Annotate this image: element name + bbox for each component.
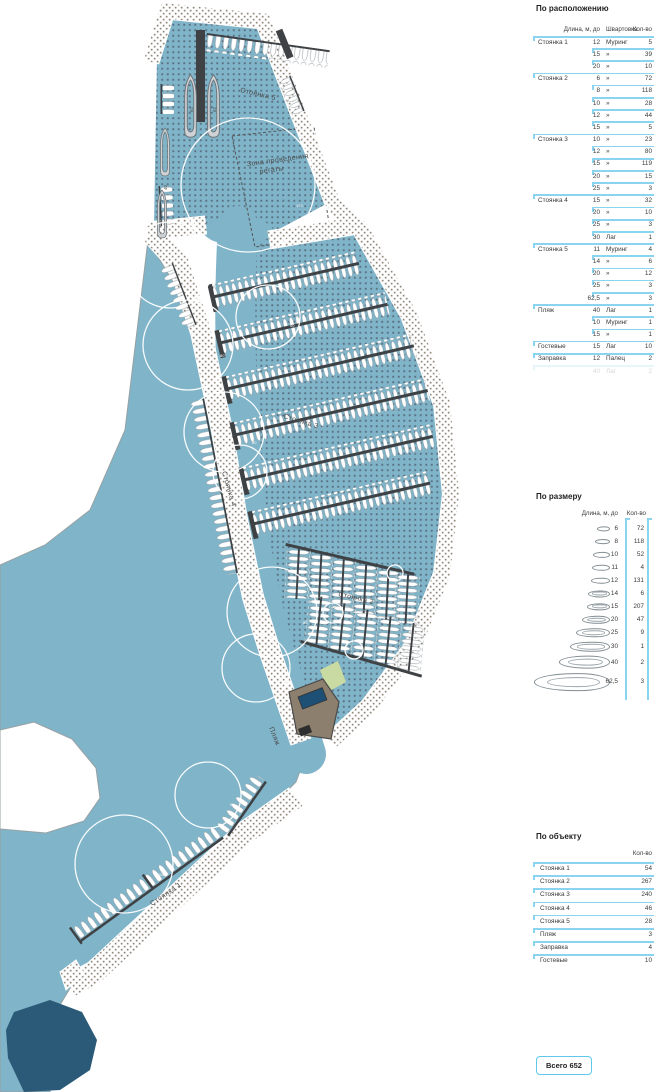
row-rule <box>592 121 654 123</box>
row-rule <box>592 292 654 294</box>
cell-qty: 39 <box>645 48 652 60</box>
cell-qty: 10 <box>645 60 652 72</box>
cell-qty: 4 <box>648 243 652 255</box>
cell-group: Стоянка 1 <box>538 36 568 48</box>
cell-length: 8 <box>596 85 600 97</box>
cell-mooring: » <box>606 182 610 194</box>
table-row: 40Лаг2 <box>530 365 656 377</box>
cell-mooring: » <box>606 146 610 158</box>
boat-deck <box>547 677 600 687</box>
cell-length: 14 <box>611 587 618 600</box>
table-row: Стоянка 2267 <box>530 875 656 888</box>
cell-length: 10 <box>593 316 600 328</box>
cell-qty: 1 <box>640 640 644 655</box>
table-row: 25»3 <box>530 280 656 292</box>
cell-length: 20 <box>593 60 600 72</box>
cell-length: 15 <box>593 48 600 60</box>
cell-qty: 10 <box>645 954 652 967</box>
cell-qty: 9 <box>640 626 644 640</box>
cell-length: 15 <box>611 600 618 613</box>
svg-text:50: 50 <box>279 675 284 680</box>
cell-qty: 3 <box>640 671 644 693</box>
yacht-length-label: 40 <box>163 184 168 190</box>
cell-group: Стоянка 4 <box>538 194 568 206</box>
cell-mooring: Лаг <box>606 304 616 316</box>
table-row: 20»10 <box>530 207 656 219</box>
cell-qty: 1 <box>648 329 652 341</box>
cell-length: 40 <box>593 365 600 377</box>
by-size-rows: 6728118105211412131146152072047259301402… <box>530 522 656 693</box>
svg-text:80: 80 <box>303 620 308 625</box>
table-row: 402 <box>530 654 656 671</box>
table-row: 20»10 <box>530 60 656 72</box>
table-row: 1052 <box>530 548 656 561</box>
cell-qty: 54 <box>645 862 652 875</box>
cell-object: Стоянка 3 <box>540 888 570 901</box>
cell-qty: 2 <box>648 353 652 365</box>
table-row: 62,53 <box>530 671 656 693</box>
table-row: Пляж40Лаг1 <box>530 304 656 316</box>
table-row: Гостевые10 <box>530 954 656 967</box>
cell-qty: 72 <box>645 73 652 85</box>
table-row: 62,5»3 <box>530 292 656 304</box>
table-row: Стоянка 511Муринг4 <box>530 243 656 255</box>
table-row: Стоянка 528 <box>530 915 656 928</box>
table-row: 10»28 <box>530 97 656 109</box>
cell-length: 8 <box>614 535 618 548</box>
cell-group: Стоянка 2 <box>538 73 568 85</box>
cell-qty: 118 <box>642 85 652 97</box>
cell-qty: 118 <box>634 535 644 548</box>
cell-mooring: » <box>606 268 610 280</box>
cell-qty: 4 <box>640 561 644 574</box>
marina-map: 62 62 40 <box>0 0 545 1092</box>
cell-qty: 46 <box>645 902 652 915</box>
table-row: Гостевые15Лаг10 <box>530 341 656 353</box>
cell-object: Стоянка 2 <box>540 875 570 888</box>
cell-length: 10 <box>593 134 600 146</box>
cell-qty: 1 <box>648 231 652 243</box>
cell-qty: 47 <box>637 613 644 626</box>
by-location-title: По расположению <box>536 4 609 13</box>
cell-qty: 1 <box>648 304 652 316</box>
cell-mooring: » <box>606 170 610 182</box>
by-size-title: По размеру <box>536 492 582 501</box>
cell-mooring: Лаг <box>606 341 616 353</box>
cell-qty: 10 <box>645 207 652 219</box>
table-row: 25»3 <box>530 219 656 231</box>
table-row: 15207 <box>530 600 656 613</box>
cell-length: 10 <box>611 548 618 561</box>
boat-icon <box>597 526 610 531</box>
cell-length: 11 <box>593 243 600 255</box>
boat-icon <box>582 615 610 623</box>
table-row: 8»118 <box>530 85 656 97</box>
cell-qty: 6 <box>648 255 652 267</box>
row-rule <box>592 280 654 282</box>
cell-mooring: Муринг <box>606 316 628 328</box>
by-object-table: По объекту Кол-во Стоянка 154Стоянка 226… <box>530 828 656 988</box>
cell-qty: 3 <box>648 292 652 304</box>
svg-text:110: 110 <box>158 872 165 877</box>
row-rule <box>592 182 654 184</box>
boat-icon <box>595 539 610 545</box>
cell-qty: 119 <box>642 158 652 170</box>
table-row: 301 <box>530 640 656 655</box>
cell-length: 62,5 <box>606 671 618 693</box>
cell-length: 15 <box>593 121 600 133</box>
table-row: Стоянка 446 <box>530 902 656 915</box>
data-panel: По расположению Длина, м, до Швартовка К… <box>530 0 656 1092</box>
total-badge: Всего 652 <box>536 1056 592 1075</box>
row-rule <box>592 255 654 257</box>
cell-qty: 207 <box>633 600 644 613</box>
cell-mooring: Муринг <box>606 36 628 48</box>
table-row: Заправка4 <box>530 941 656 954</box>
cell-length: 15 <box>593 329 600 341</box>
cell-mooring: Муринг <box>606 243 628 255</box>
table-row: 672 <box>530 522 656 535</box>
boat-icon <box>576 628 610 638</box>
cell-mooring: » <box>606 121 610 133</box>
boat-deck <box>577 644 604 650</box>
svg-text:80: 80 <box>252 440 257 445</box>
cell-length: 30 <box>611 640 618 655</box>
cell-length: 12 <box>593 146 600 158</box>
cell-qty: 28 <box>645 915 652 928</box>
table-row: 15»5 <box>530 121 656 133</box>
table-row: 15»119 <box>530 158 656 170</box>
table-row: 20»12 <box>530 268 656 280</box>
cell-mooring: » <box>606 48 610 60</box>
cell-qty: 6 <box>640 587 644 600</box>
berth-row <box>161 84 175 114</box>
cell-object: Стоянка 4 <box>540 902 570 915</box>
col-header-length: Длина, м, до <box>564 26 600 33</box>
cell-qty: 5 <box>648 36 652 48</box>
by-size-table: По размеру Длина, м, до Кол-во 672811810… <box>530 488 656 728</box>
row-rule <box>592 231 654 233</box>
cell-qty: 15 <box>645 170 652 182</box>
cell-object: Пляж <box>540 928 556 941</box>
table-row: Стоянка 3240 <box>530 888 656 901</box>
col-header-length: Длина, м, до <box>582 510 618 517</box>
cell-mooring: Лаг <box>606 365 616 377</box>
cell-qty: 2 <box>640 654 644 671</box>
cell-group: Гостевые <box>538 341 566 353</box>
col-header-qty: Кол-во <box>627 510 646 517</box>
marina-plan-page: 62 62 40 <box>0 0 656 1092</box>
boat-deck <box>592 605 607 608</box>
col-header-qty: Кол-во <box>633 850 652 857</box>
cell-qty: 267 <box>641 875 652 888</box>
cell-mooring: Лаг <box>606 231 616 243</box>
cell-length: 6 <box>596 73 600 85</box>
svg-text:80: 80 <box>220 353 225 358</box>
cell-length: 12 <box>593 109 600 121</box>
table-row: Заправка12Палец2 <box>530 353 656 365</box>
cell-qty: 3 <box>648 928 652 941</box>
cell-qty: 240 <box>641 888 652 901</box>
table-row: 259 <box>530 626 656 640</box>
cell-qty: 3 <box>648 182 652 194</box>
cell-length: 25 <box>593 219 600 231</box>
cell-length: 25 <box>593 182 600 194</box>
boat-icon <box>587 603 610 610</box>
cell-length: 40 <box>593 304 600 316</box>
cell-mooring: » <box>606 280 610 292</box>
boat-deck <box>582 630 605 635</box>
table-row: 146 <box>530 587 656 600</box>
cell-length: 6 <box>614 522 618 535</box>
table-row: 12»44 <box>530 109 656 121</box>
row-rule <box>592 329 654 331</box>
boat-icon <box>570 642 610 653</box>
table-row: 10Муринг1 <box>530 316 656 328</box>
cell-object: Стоянка 1 <box>540 862 570 875</box>
cell-mooring: » <box>606 207 610 219</box>
cell-length: 11 <box>611 561 618 574</box>
cell-qty: 131 <box>633 574 644 587</box>
svg-text:50: 50 <box>230 802 235 807</box>
cell-qty: 12 <box>645 268 652 280</box>
table-row: Стоянка 310»23 <box>530 134 656 146</box>
table-row: 8118 <box>530 535 656 548</box>
cell-object: Стоянка 5 <box>540 915 570 928</box>
table-row: 12»80 <box>530 146 656 158</box>
cell-mooring: » <box>606 109 610 121</box>
cell-length: 14 <box>593 255 600 267</box>
col-header-qty: Кол-во <box>633 26 652 33</box>
cell-mooring: » <box>606 134 610 146</box>
cell-qty: 5 <box>648 121 652 133</box>
cell-length: 12 <box>611 574 618 587</box>
boat-icon <box>591 577 610 584</box>
harbour-pier <box>196 30 205 122</box>
cell-length: 10 <box>593 97 600 109</box>
cell-object: Гостевые <box>540 954 568 967</box>
cell-qty: 28 <box>645 97 652 109</box>
cell-length: 12 <box>593 353 600 365</box>
cell-group: Заправка <box>538 353 566 365</box>
cell-length: 15 <box>593 158 600 170</box>
cell-qty: 3 <box>648 219 652 231</box>
cell-mooring: Палец <box>606 353 625 365</box>
cell-qty: 80 <box>645 146 652 158</box>
cell-length: 15 <box>593 194 600 206</box>
boat-deck <box>587 617 606 621</box>
table-row: Пляж3 <box>530 928 656 941</box>
svg-text:80: 80 <box>200 273 205 278</box>
yacht-length-label: 62 <box>212 106 217 112</box>
cell-length: 25 <box>611 626 618 640</box>
by-object-title: По объекту <box>536 832 581 841</box>
cell-qty: 23 <box>645 134 652 146</box>
boat-deck <box>568 659 603 666</box>
table-row: 2047 <box>530 613 656 626</box>
svg-text:50: 50 <box>258 478 263 483</box>
cell-length: 20 <box>593 207 600 219</box>
table-row: Стоянка 112Муринг5 <box>530 36 656 48</box>
cell-qty: 10 <box>645 341 652 353</box>
cell-mooring: » <box>606 255 610 267</box>
by-location-rows: Стоянка 112Муринг515»3920»10Стоянка 26»7… <box>530 36 656 377</box>
cell-mooring: » <box>606 85 610 97</box>
row-rule <box>592 219 654 221</box>
cell-group: Стоянка 5 <box>538 243 568 255</box>
cell-qty: 52 <box>637 548 644 561</box>
boat-icon <box>534 673 610 691</box>
cell-mooring: » <box>606 60 610 72</box>
cell-object: Заправка <box>540 941 568 954</box>
cell-mooring: » <box>606 329 610 341</box>
table-row: Стоянка 415»32 <box>530 194 656 206</box>
cell-length: 15 <box>593 341 600 353</box>
table-row: 114 <box>530 561 656 574</box>
table-row: Стоянка 26»72 <box>530 73 656 85</box>
boat-deck <box>592 592 606 595</box>
boat-icon <box>593 551 610 557</box>
cell-mooring: » <box>606 292 610 304</box>
cell-qty: 3 <box>648 280 652 292</box>
cell-length: 62,5 <box>588 292 600 304</box>
deep-water-patch <box>6 1000 97 1092</box>
cell-mooring: » <box>606 194 610 206</box>
table-row: 12131 <box>530 574 656 587</box>
cell-group: Пляж <box>538 304 554 316</box>
cell-mooring: » <box>606 158 610 170</box>
yacht-length-label: 62 <box>189 106 194 112</box>
cell-length: 20 <box>593 268 600 280</box>
cell-qty: 4 <box>648 941 652 954</box>
cell-qty: 32 <box>645 194 652 206</box>
cell-length: 12 <box>593 36 600 48</box>
table-row: 20»15 <box>530 170 656 182</box>
table-row: 14»6 <box>530 255 656 267</box>
cell-qty: 2 <box>648 365 652 377</box>
table-row: 25»3 <box>530 182 656 194</box>
cell-mooring: » <box>606 73 610 85</box>
table-row: 30Лаг1 <box>530 231 656 243</box>
cell-mooring: » <box>606 219 610 231</box>
cell-length: 20 <box>593 170 600 182</box>
cell-qty: 72 <box>637 522 644 535</box>
cell-length: 30 <box>593 231 600 243</box>
cell-length: 40 <box>611 654 618 671</box>
boat-icon <box>592 564 610 570</box>
cell-length: 25 <box>593 280 600 292</box>
cell-group: Стоянка 3 <box>538 134 568 146</box>
table-row: Стоянка 154 <box>530 862 656 875</box>
svg-text:140: 140 <box>296 203 303 208</box>
boat-icon <box>588 590 610 597</box>
cell-qty: 44 <box>645 109 652 121</box>
cell-length: 20 <box>611 613 618 626</box>
table-row: 15»39 <box>530 48 656 60</box>
svg-text:50: 50 <box>290 323 295 328</box>
by-object-rows: Стоянка 154Стоянка 2267Стоянка 3240Стоян… <box>530 862 656 968</box>
cell-qty: 1 <box>648 316 652 328</box>
table-row: 15»1 <box>530 329 656 341</box>
cell-mooring: » <box>606 97 610 109</box>
boat-icon <box>559 656 610 669</box>
